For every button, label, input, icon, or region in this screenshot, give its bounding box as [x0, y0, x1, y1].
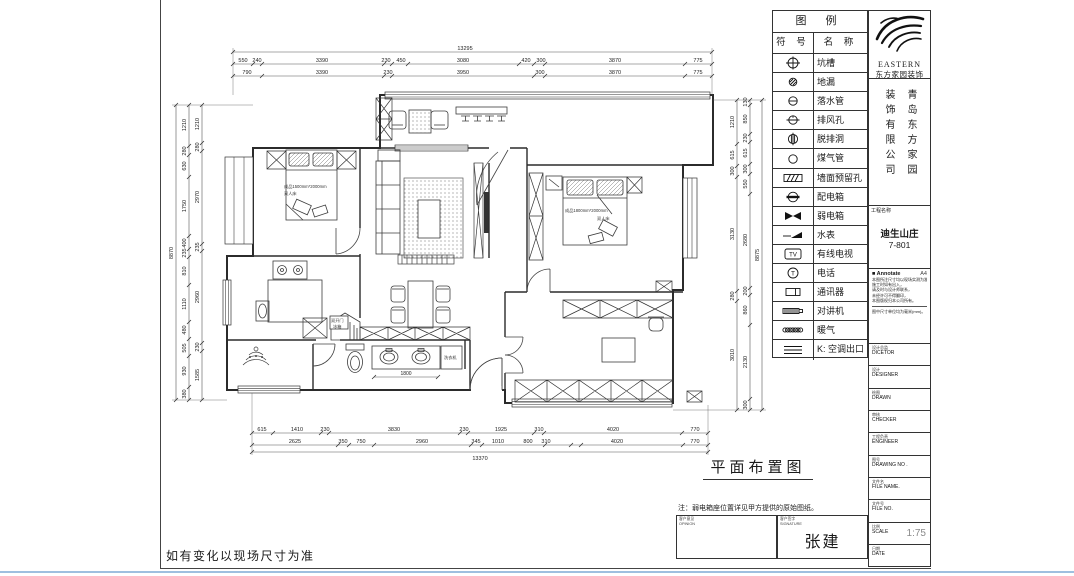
dim: 13370 [472, 456, 487, 462]
legend-item-label: 配电箱 [814, 188, 867, 206]
legend-item-label: 墙面预留孔 [814, 169, 867, 187]
titleblock-row-director: 设计总监DICETOR [869, 344, 930, 366]
logo-subtitle: 东方家园装饰 [869, 69, 930, 79]
downpipe-icon [780, 94, 806, 108]
titleblock-row-drawn: 绘图DRAWN [869, 389, 930, 411]
legend-item-label: K: 空调出口 [814, 340, 867, 359]
dim: 615 [257, 427, 266, 433]
dim: 230 [381, 58, 390, 64]
dim: 1110 [182, 298, 188, 309]
customer-signature-box: 客户签字SIGNATURE 张建 [777, 515, 868, 559]
dim: 300 [535, 70, 544, 76]
fridge-label-1: 双开门 [331, 317, 344, 324]
dim: 2960 [195, 291, 201, 303]
dim: 615 [730, 150, 736, 159]
telephone-icon: T [780, 266, 806, 280]
project-name-label: 工程名称 [871, 207, 891, 214]
dim: 130 [743, 97, 749, 106]
titleblock-row-designer: 设计DESIGNER [869, 366, 930, 388]
legend-item-label: 电话 [814, 264, 867, 282]
legend-item-label: 排风孔 [814, 111, 867, 129]
dim: 300 [743, 400, 749, 409]
dim: 1210 [730, 116, 736, 128]
dim: 480 [182, 325, 188, 334]
legend-item-label: 有线电视 [814, 245, 867, 263]
svg-text:T: T [791, 271, 795, 278]
dim: 550 [238, 58, 247, 64]
dim: 1010 [492, 439, 504, 445]
dim: 775 [693, 58, 702, 64]
dim: 345 [471, 439, 480, 445]
scale-value: 1:75 [907, 528, 926, 539]
drawing-note: 注：弱电箱座位置详见甲方提供的原始图纸。 [678, 503, 818, 513]
dim: 1210 [182, 119, 188, 131]
dim: 2130 [743, 356, 749, 368]
dimension-ticks [174, 50, 764, 454]
dim: 4020 [607, 427, 619, 433]
kitchen-stove [273, 261, 307, 279]
dim: 13295 [457, 46, 472, 52]
ac-outlet-icon [780, 343, 806, 357]
dim: 550 [743, 179, 749, 188]
dim: 400 [182, 238, 188, 247]
drawing-sheet: 成品1500mm*2000mm 双人床 双开门 冰箱 [0, 0, 1074, 576]
eastern-logo-icon [869, 11, 930, 55]
dim: 230 [743, 133, 749, 142]
dim: 1750 [182, 200, 188, 212]
dim: 280 [730, 291, 736, 300]
dim: 1585 [195, 369, 201, 381]
drawing-title: 平面布置图 [703, 456, 813, 480]
signature-label: 客户签字SIGNATURE [780, 517, 802, 526]
company-logo-box: EASTERN 东方家园装饰 [869, 11, 930, 79]
dim: 3010 [730, 349, 736, 361]
dim: 2960 [416, 439, 428, 445]
legend-col-name: 名 称 [814, 33, 867, 53]
shower [243, 347, 269, 365]
dim: 810 [182, 266, 188, 275]
dim: 790 [242, 70, 251, 76]
dim: 2680 [743, 234, 749, 246]
row-label-en: DRAWN [872, 395, 930, 402]
tv [484, 192, 489, 233]
titleblock-row-date: 日期DATE [869, 545, 930, 567]
legend-item-label: 脱排洞 [814, 130, 867, 148]
dim: 280 [182, 146, 188, 155]
row-label-en: FILE NO. [872, 506, 930, 513]
dim: 770 [690, 439, 699, 445]
legend-item-label: 坑槽 [814, 54, 867, 72]
legend-table: 图 例 符 号 名 称 坑槽 地漏 落水管 排风孔 脱排洞 煤气管 墙面预留孔 … [772, 10, 868, 358]
opinion-label: 客户意见OPINION [679, 517, 695, 526]
legend-item-label: 通讯器 [814, 283, 867, 301]
dim: 850 [743, 114, 749, 123]
svg-text:TV: TV [789, 252, 797, 258]
titleblock-row-scale: 比例SCALE1:75 [869, 523, 930, 545]
row-label-en: ENGINEER [872, 439, 930, 446]
pit-circle-cross-icon [780, 56, 806, 70]
dim: 1410 [291, 427, 303, 433]
project-name: 迪生山庄 [869, 226, 930, 240]
bar-counter-stools [456, 107, 507, 121]
heating-icon [780, 323, 806, 337]
study-desk-chair [602, 317, 664, 362]
dim: 200 [743, 286, 749, 295]
legend-item-label: 弱电箱 [814, 207, 867, 225]
intercom-icon [780, 304, 806, 318]
dim: 3130 [730, 228, 736, 240]
study-table [602, 338, 635, 362]
windows [223, 92, 710, 407]
dim: 300 [743, 164, 749, 173]
company-name-box: 青岛东方家园 装饰有限公司 [869, 79, 930, 206]
coffee-table [418, 200, 440, 238]
wall-reserved-hole-icon [780, 171, 806, 185]
floor-drain-icon [780, 75, 806, 89]
dim: 3390 [316, 70, 328, 76]
legend-item-label: 地漏 [814, 73, 867, 91]
window-bottom-edge [0, 571, 1074, 573]
dim: 505 [182, 343, 188, 352]
bedroom2-bed-type: 双人床 [597, 215, 610, 222]
kitchen-counter [268, 280, 322, 322]
dimension-lines [172, 48, 766, 455]
footer-warning-text: 如有变化以现场尺寸为准 [166, 547, 315, 564]
titleblock-row-file-name: 文件名FILE NAME. [869, 478, 930, 500]
dim: 230 [383, 70, 392, 76]
legend-item-label: 对讲机 [814, 302, 867, 320]
power-distribution-box-icon [780, 190, 806, 204]
dim: 750 [356, 439, 365, 445]
bedroom1-bed-type: 双人床 [284, 190, 297, 197]
project-box: 工程名称 迪生山庄 7-801 [869, 206, 930, 269]
row-label-en: DATE [872, 551, 930, 558]
washing-machine-label: 洗衣机 [444, 354, 457, 361]
dim: 630 [182, 161, 188, 170]
logo-wordmark: EASTERN [869, 60, 930, 69]
living-rug [404, 178, 463, 258]
balcony-armchairs [389, 110, 448, 133]
legend-item-label: 煤气管 [814, 149, 867, 167]
gas-pipe-icon [780, 152, 806, 166]
vanity-dim-text: 1800 [400, 371, 411, 377]
vent-hole-icon [780, 113, 806, 127]
annotate-footer: 图中尺寸单位均为毫米(mm)。 [872, 309, 927, 314]
row-label-en: DESIGNER [872, 372, 930, 379]
vanity-double-sink [372, 346, 440, 369]
annotate-box: ■ AnnotateA4 本图所注尺寸均以现场实测为准， 施工时如有出入， 请及… [869, 269, 930, 344]
communicator-icon [780, 285, 806, 299]
row-label-en: CHECKER [872, 417, 930, 424]
dim: 3870 [609, 58, 621, 64]
dim: 1925 [495, 427, 507, 433]
annotate-line: 本图版权归本公司所有。 [872, 298, 927, 303]
dining-table [391, 281, 450, 328]
dim: 420 [521, 58, 530, 64]
dim: 930 [182, 366, 188, 375]
dim: 235 [195, 242, 201, 251]
dim: 280 [195, 142, 201, 151]
sheet-left-border [160, 0, 161, 569]
dim: 310 [541, 439, 550, 445]
sheet-bottom-border [160, 568, 931, 569]
legend-title: 图 例 [773, 11, 867, 33]
sofa [376, 150, 400, 254]
water-meter-icon [780, 228, 806, 242]
vanity-dimension: 1800 [372, 371, 440, 379]
row-label-en: DRAWING NO . [872, 462, 930, 469]
dim: 8875 [755, 249, 761, 261]
dim: 350 [338, 439, 347, 445]
dim: 240 [252, 58, 261, 64]
dim: 300 [536, 58, 545, 64]
titleblock-row-drawing-no: 图号DRAWING NO . [869, 456, 930, 478]
legend-item-label: 落水管 [814, 92, 867, 110]
dim: 230 [459, 427, 468, 433]
customer-opinion-box: 客户意见OPINION [676, 515, 777, 559]
signature-name: 张建 [804, 528, 840, 552]
cabinet-hatch-boxes [267, 98, 702, 402]
balcony-table [409, 110, 431, 133]
dim: 3080 [457, 58, 469, 64]
row-label-en: FILE NAME. [872, 484, 930, 491]
titleblock-row-file-no: 文件号FILE NO. [869, 500, 930, 522]
dim: 3390 [316, 58, 328, 64]
titleblock-row-engineer: 工程负责ENGINEER [869, 433, 930, 455]
bedroom2-bed-spec: 成品1800mm*2000mm [565, 207, 608, 214]
company-name-right-column: 青岛东方家园 [903, 89, 918, 179]
dim: 4020 [611, 439, 623, 445]
toilet [346, 344, 364, 373]
dim: 2970 [195, 191, 201, 203]
dim: 8870 [169, 247, 175, 259]
dim: 230 [195, 342, 201, 351]
dim: 310 [534, 427, 543, 433]
dim: 3870 [609, 70, 621, 76]
bedroom1-bed-spec: 成品1500mm*2000mm [284, 183, 327, 190]
dim: 615 [743, 148, 749, 157]
project-number: 7-801 [869, 240, 930, 250]
dim: 3950 [457, 70, 469, 76]
dim: 2625 [289, 439, 301, 445]
dim: 770 [690, 427, 699, 433]
legend-col-symbol: 符 号 [773, 33, 814, 53]
kitchen-sink [256, 301, 269, 321]
low-voltage-box-icon [780, 209, 806, 223]
dim: 450 [396, 58, 405, 64]
row-label-en: DICETOR [872, 350, 930, 357]
dim: 1210 [195, 118, 201, 130]
dim: 300 [730, 166, 736, 175]
dim: 230 [320, 427, 329, 433]
legend-item-label: 暖气 [814, 321, 867, 339]
company-name-left-column: 装饰有限公司 [881, 89, 896, 179]
dim: 3830 [388, 427, 400, 433]
dim: 800 [523, 439, 532, 445]
title-block-panel: EASTERN 东方家园装饰 青岛东方家园 装饰有限公司 工程名称 迪生山庄 7… [868, 10, 931, 567]
legend-item-label: 水表 [814, 226, 867, 244]
titleblock-row-checker: 审核CHECKER [869, 411, 930, 433]
dim: 860 [743, 305, 749, 314]
hood-vent-hole-icon [780, 132, 806, 146]
cable-tv-icon: TV [780, 247, 806, 261]
dim: 380 [182, 389, 188, 398]
dim: 235 [182, 248, 188, 257]
fridge-label-2: 冰箱 [333, 323, 341, 330]
dim: 775 [693, 70, 702, 76]
tv-cabinet [474, 163, 489, 258]
